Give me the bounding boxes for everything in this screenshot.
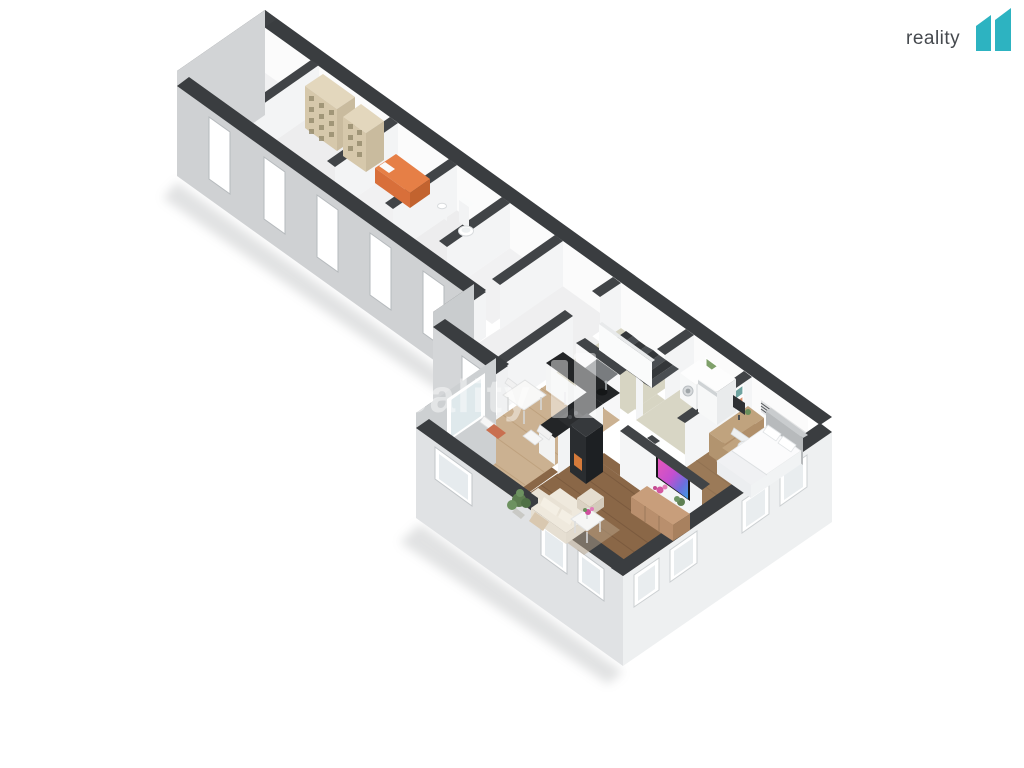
watermark-mark-bar-1 xyxy=(551,360,568,418)
floor-plan-svg: reality reality xyxy=(0,0,1024,768)
decor-flowers xyxy=(663,485,668,490)
floor-plan-render: reality reality xyxy=(0,0,1024,768)
brand-logo: reality xyxy=(906,8,1011,51)
logo-mark-bar-2 xyxy=(995,8,1011,51)
sink-basin xyxy=(438,203,447,209)
fireplace xyxy=(570,413,603,484)
plant-foliage xyxy=(521,498,531,508)
plant-foliage xyxy=(516,489,524,497)
decor-flowers xyxy=(657,487,664,494)
flowers-green xyxy=(583,508,587,512)
decor-flowers xyxy=(653,486,657,490)
logo-mark-bar-1 xyxy=(976,15,991,51)
burner xyxy=(568,415,572,419)
washer-door-glass xyxy=(686,389,691,394)
toilet-seat xyxy=(462,227,471,233)
flowers-pink xyxy=(590,507,594,511)
decor-plant xyxy=(674,496,680,502)
logo-mark-11 xyxy=(976,8,1011,51)
logo-text: reality xyxy=(906,28,960,49)
desk-plant xyxy=(745,409,751,415)
faucet-head xyxy=(605,381,608,384)
watermark-mark-bar-2 xyxy=(574,353,596,418)
plant-foliage xyxy=(507,500,517,510)
watermark-text: reality xyxy=(382,370,532,422)
